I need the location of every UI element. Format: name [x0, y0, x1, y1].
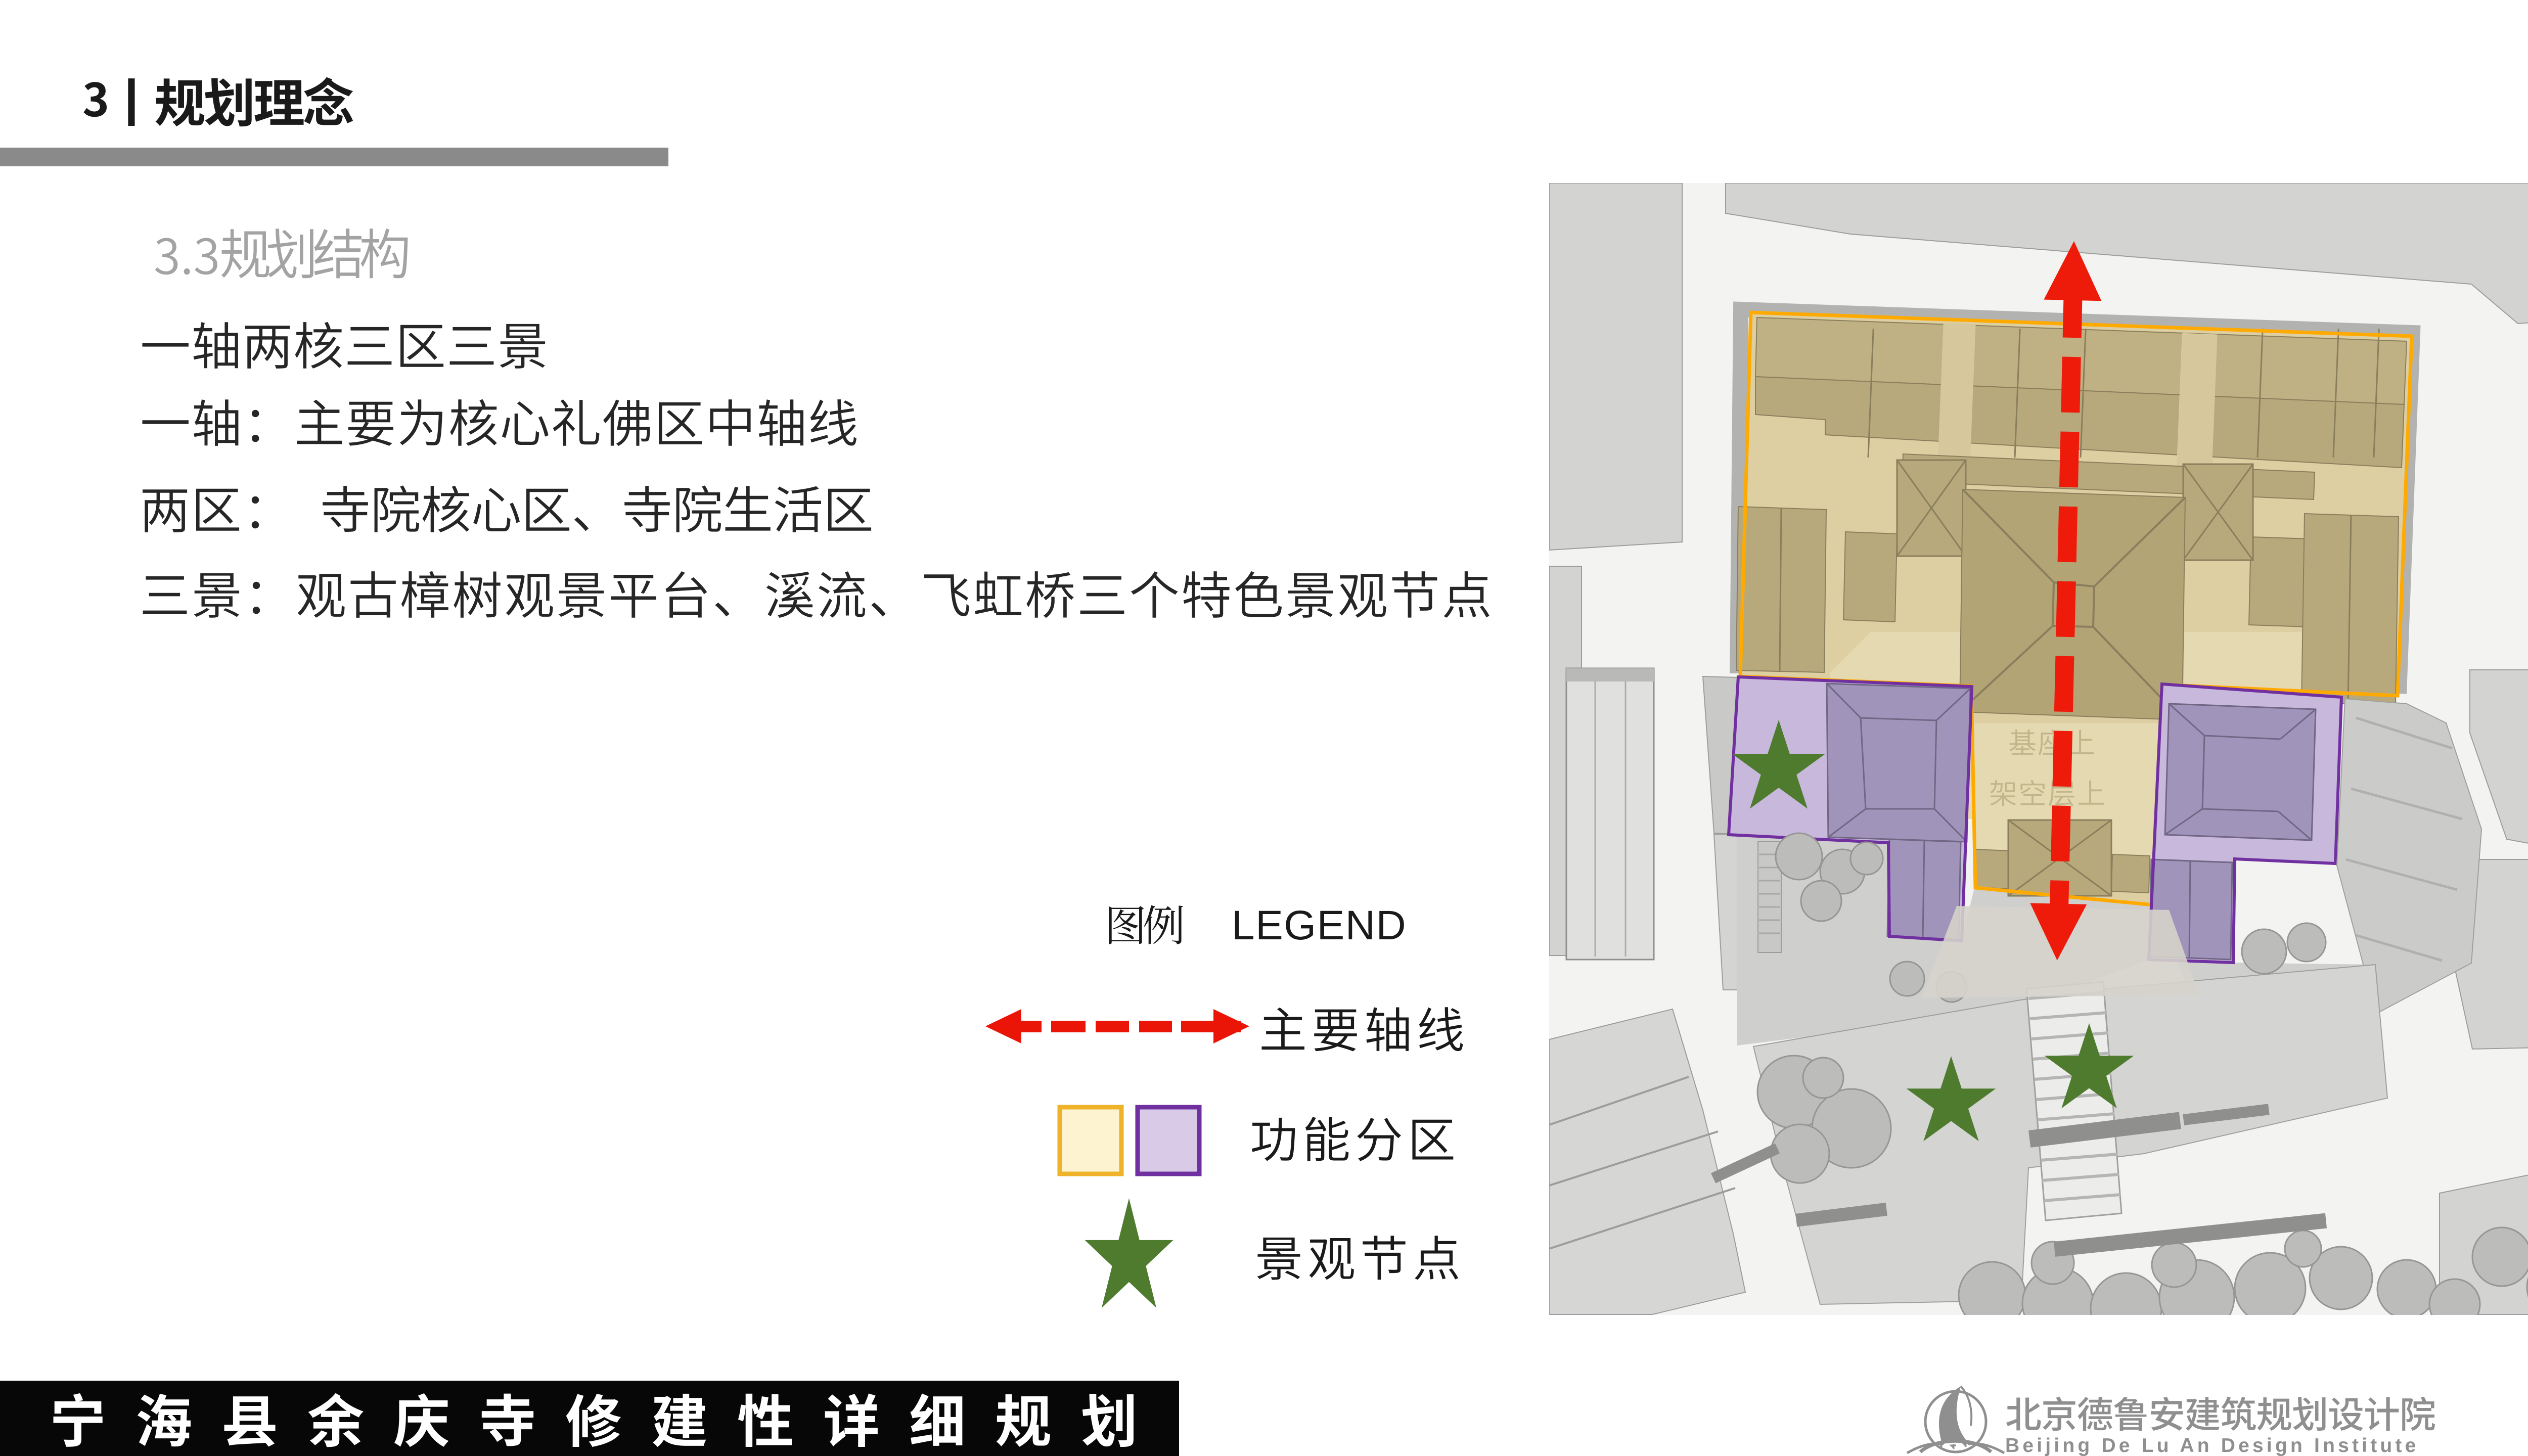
svg-text:LEGEND: LEGEND: [1232, 902, 1407, 948]
svg-text:Beijing De Lu An Design Instit: Beijing De Lu An Design Institute: [2005, 1435, 2419, 1456]
